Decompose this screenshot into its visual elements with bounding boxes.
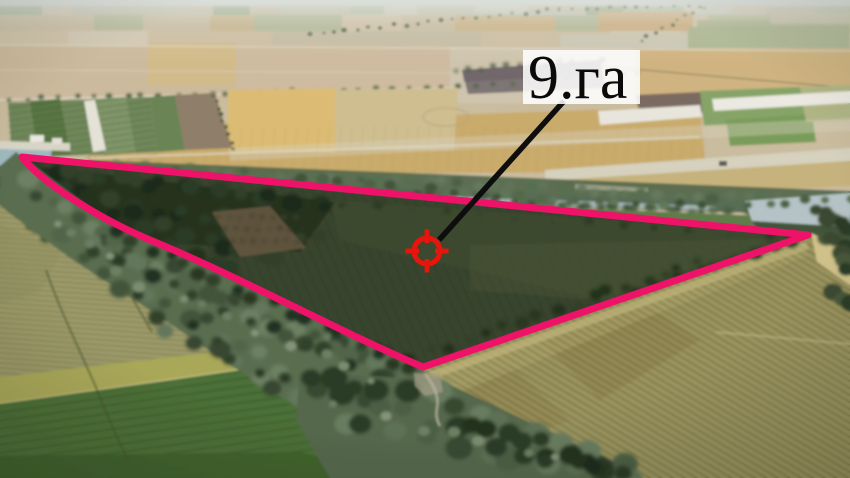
svg-text:9.га: 9.га xyxy=(528,44,627,112)
